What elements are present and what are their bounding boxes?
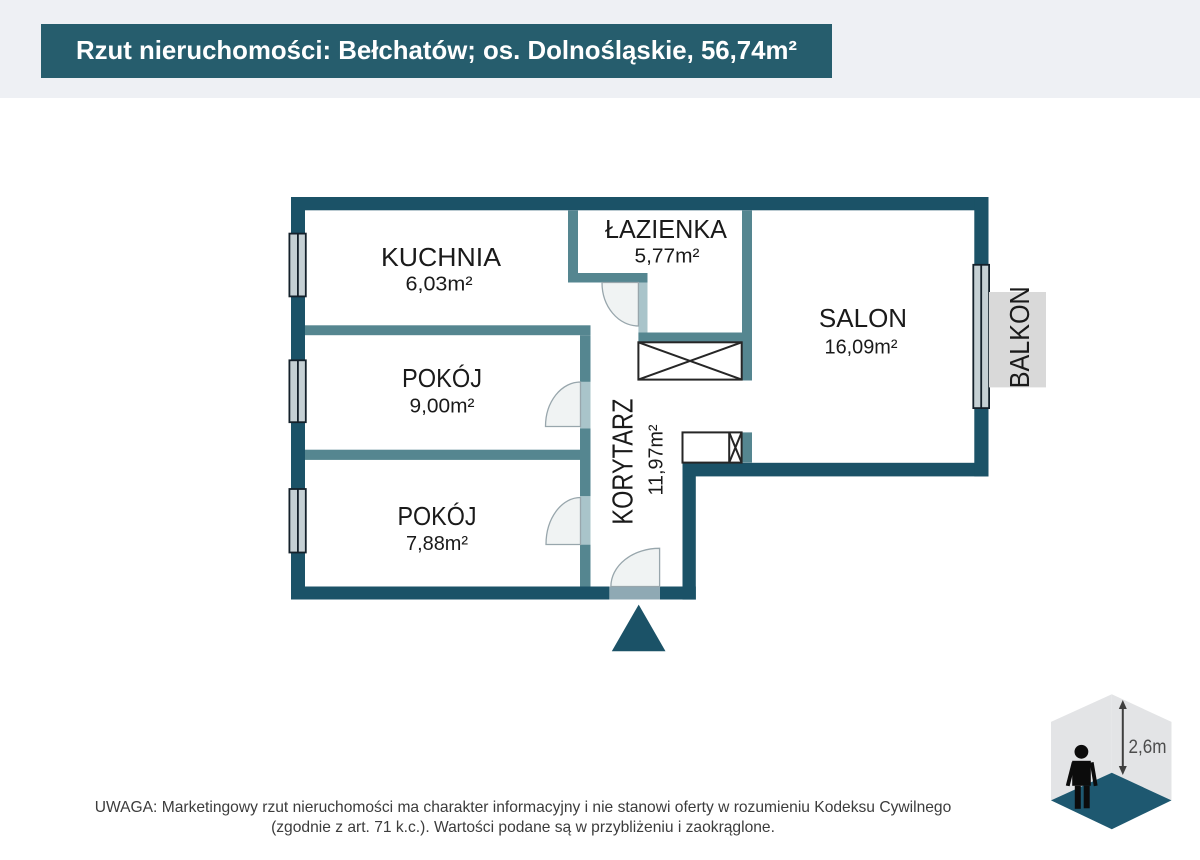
svg-text:2,6m: 2,6m [1129, 736, 1167, 758]
svg-text:SALON: SALON [819, 303, 907, 333]
svg-text:ŁAZIENKA: ŁAZIENKA [605, 214, 728, 244]
svg-text:11,97m²: 11,97m² [646, 424, 668, 495]
svg-text:9,00m²: 9,00m² [410, 396, 475, 418]
svg-text:POKÓJ: POKÓJ [398, 501, 477, 531]
svg-text:KUCHNIA: KUCHNIA [381, 242, 502, 272]
svg-text:KORYTARZ: KORYTARZ [607, 399, 639, 525]
svg-text:POKÓJ: POKÓJ [402, 363, 482, 393]
svg-text:16,09m²: 16,09m² [825, 337, 898, 359]
svg-text:5,77m²: 5,77m² [635, 246, 700, 268]
svg-text:6,03m²: 6,03m² [406, 274, 473, 296]
svg-text:BALKON: BALKON [1004, 286, 1035, 388]
svg-text:7,88m²: 7,88m² [406, 533, 468, 555]
